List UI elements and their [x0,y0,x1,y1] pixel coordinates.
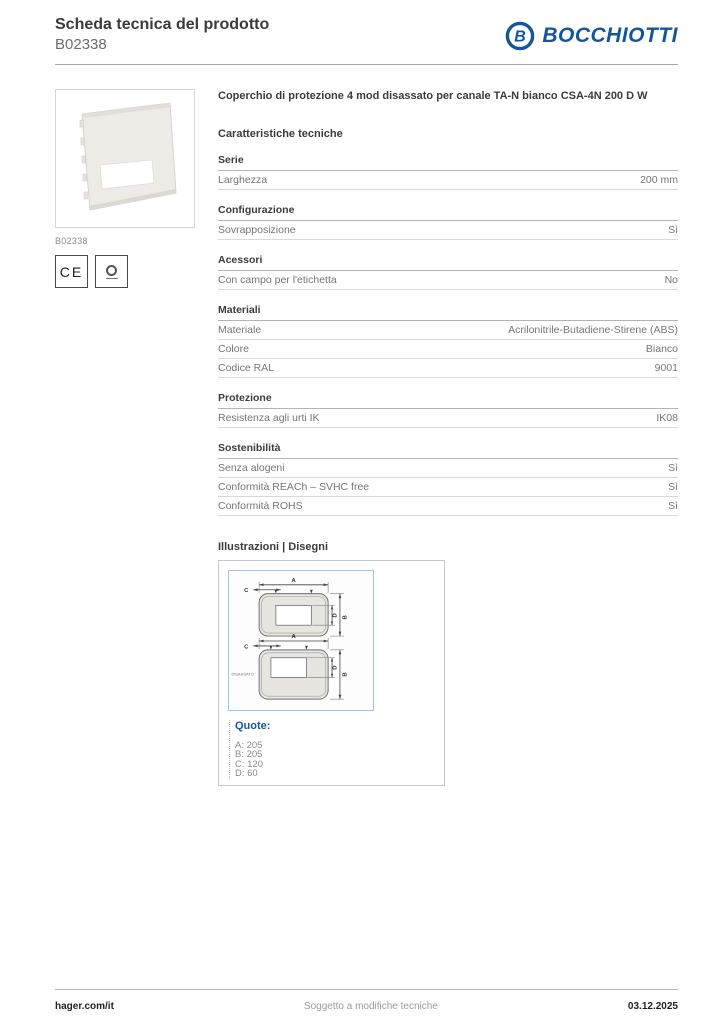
spec-row: Conformità ROHS Sì [218,497,678,516]
spec-value: Acrilonitrile-Butadiene-Stirene (ABS) [508,324,678,336]
spec-section-title: Materiali [218,304,678,321]
spec-label: Codice RAL [218,362,274,374]
product-name: Coperchio di protezione 4 mod disassato … [218,89,678,103]
spec-value: Sì [668,462,678,474]
certifications: CE [55,255,218,288]
spec-rows: Resistenza agli urti IK IK08 [218,409,678,428]
spec-section: Sostenibilità Senza alogeni Sì Conformit… [218,442,678,516]
spec-rows: Senza alogeni Sì Conformità REACh – SVHC… [218,459,678,516]
footer-disclaimer: Soggetto a modifiche tecniche [304,1001,438,1012]
quote-line: C: 120 [235,760,435,770]
spec-rows: Larghezza 200 mm [218,171,678,190]
quote-line: A: 205 [235,741,435,751]
quote-block: Quote: A: 205B: 205C: 120D: 60 [229,720,435,779]
svg-text:B: B [342,672,348,676]
svg-text:C: C [244,588,249,594]
spec-label: Conformità REACh – SVHC free [218,481,369,493]
spec-rows: Sovrapposizione Sì [218,221,678,240]
svg-text:D: D [332,664,338,669]
content: B02338 CE Coperchio di protezione 4 mod … [0,65,724,785]
spec-row: Materiale Acrilonitrile-Butadiene-Stiren… [218,321,678,340]
dimension-drawing-icon: A C B D [229,571,373,710]
spec-row: Larghezza 200 mm [218,171,678,190]
spec-section: Materiali Materiale Acrilonitrile-Butadi… [218,304,678,378]
svg-text:B: B [515,29,527,46]
product-code: B02338 [55,36,269,53]
technical-drawing: A C B D [228,570,374,711]
svg-text:A: A [291,578,296,584]
spec-label: Conformità ROHS [218,500,303,512]
spec-value: IK08 [656,412,678,424]
spec-row: Senza alogeni Sì [218,459,678,478]
quality-mark-icon [95,255,128,288]
page-title: Scheda tecnica del prodotto [55,16,269,34]
svg-text:C: C [244,644,249,650]
product-image [55,89,195,228]
spec-rows: Materiale Acrilonitrile-Butadiene-Stiren… [218,321,678,378]
characteristics-heading: Caratteristiche tecniche [218,128,678,140]
datasheet-page: Scheda tecnica del prodotto B02338 B BOC… [0,0,724,1024]
svg-text:D: D [332,612,338,617]
footer-date: 03.12.2025 [628,1001,678,1012]
spec-value: Sì [668,500,678,512]
spec-value: No [665,274,678,286]
spec-row: Sovrapposizione Sì [218,221,678,240]
page-header: Scheda tecnica del prodotto B02338 B BOC… [0,0,724,53]
spec-section: Serie Larghezza 200 mm [218,154,678,190]
spec-section-title: Protezione [218,392,678,409]
header-titles: Scheda tecnica del prodotto B02338 [55,16,269,53]
spec-row: Colore Bianco [218,340,678,359]
illustrations-heading: Illustrazioni | Disegni [218,541,678,553]
brand-logo: B BOCCHIOTTI [504,20,678,52]
spec-row: Con campo per l'etichetta No [218,271,678,290]
spec-section: Protezione Resistenza agli urti IK IK08 [218,392,678,428]
spec-section: Acessori Con campo per l'etichetta No [218,254,678,290]
spec-value: 200 mm [640,174,678,186]
brand-emblem-icon: B [504,20,536,52]
page-footer: hager.com/it Soggetto a modifiche tecnic… [55,989,678,1012]
brand-name: BOCCHIOTTI [542,24,678,48]
left-column: B02338 CE [55,89,218,785]
spec-section-title: Configurazione [218,204,678,221]
website-link[interactable]: hager.com/it [55,1001,114,1012]
spec-label: Colore [218,343,249,355]
spec-row: Codice RAL 9001 [218,359,678,378]
spec-value: 9001 [655,362,678,374]
image-caption: B02338 [55,236,218,246]
spec-value: Bianco [646,343,678,355]
svg-text:A: A [291,634,296,640]
spec-row: Resistenza agli urti IK IK08 [218,409,678,428]
product-photo-icon [56,90,194,227]
spec-label: Senza alogeni [218,462,285,474]
ce-mark-icon: CE [55,255,88,288]
quote-lines: A: 205B: 205C: 120D: 60 [235,741,435,779]
spec-section-title: Acessori [218,254,678,271]
illustration-box: A C B D [218,560,445,786]
spec-value: Sì [668,481,678,493]
spec-label: Materiale [218,324,261,336]
quote-line: D: 60 [235,769,435,779]
spec-rows: Con campo per l'etichetta No [218,271,678,290]
spec-row: Conformità REACh – SVHC free Sì [218,478,678,497]
spec-value: Sì [668,224,678,236]
spec-section-title: Sostenibilità [218,442,678,459]
spec-label: Sovrapposizione [218,224,296,236]
spec-section-title: Serie [218,154,678,171]
characteristics-sections: Serie Larghezza 200 mm Configurazione So… [218,154,678,516]
main-column: Coperchio di protezione 4 mod disassato … [218,89,678,785]
spec-section: Configurazione Sovrapposizione Sì [218,204,678,240]
spec-label: Resistenza agli urti IK [218,412,320,424]
drawing-label: DISASSATO [232,671,254,676]
spec-label: Larghezza [218,174,267,186]
svg-text:B: B [342,615,348,619]
quote-label: Quote: [235,720,435,732]
quote-line: B: 205 [235,750,435,760]
spec-label: Con campo per l'etichetta [218,274,337,286]
